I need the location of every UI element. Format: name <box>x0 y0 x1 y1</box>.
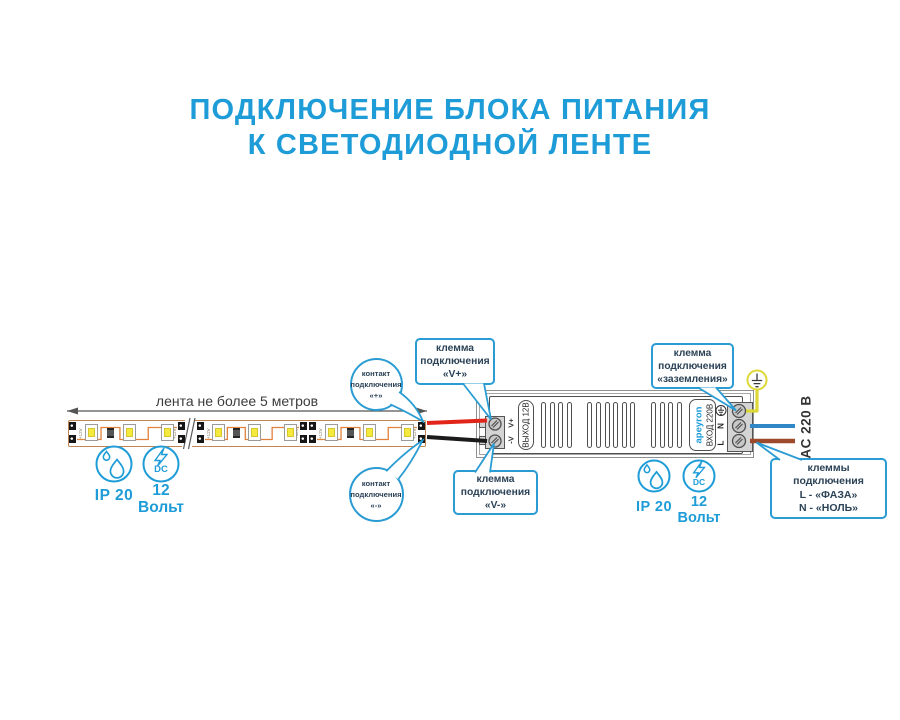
dc-label-right: DC <box>693 477 705 487</box>
callout-line: контакт <box>362 478 390 489</box>
callout-line: «V-» <box>485 499 506 512</box>
terminal-label-neutral: N <box>717 423 726 429</box>
callout-line: «заземления» <box>657 373 727 386</box>
vent-slot <box>630 402 635 448</box>
callout-line: подключения <box>658 360 727 373</box>
vent-slot <box>668 402 673 448</box>
psu-output-label: ВЫХОД 12В <box>522 402 531 447</box>
callout-line: N - «НОЛЬ» <box>799 502 858 515</box>
voltage-value-left: 12 <box>152 482 169 500</box>
vent-slot <box>567 402 572 448</box>
ip20-water-icon-left <box>97 447 132 482</box>
psu-brand-text: apeyron <box>694 407 705 444</box>
callout-line: клеммы <box>807 462 849 475</box>
callout-line: подключения <box>793 475 864 488</box>
callout-line: клемма <box>436 342 474 355</box>
ac-voltage-label: AC 220 В <box>799 395 814 458</box>
voltage-unit-right: Вольт <box>678 510 721 526</box>
callout-line: контакт <box>362 368 390 379</box>
vent-slot <box>550 402 555 448</box>
callout-contact-minus: контакт подключения «-» <box>349 467 404 522</box>
callout-line: «-» <box>371 500 382 511</box>
led-strip-body <box>68 420 426 447</box>
terminal-label-vplus: V+ <box>507 418 516 427</box>
callout-line: клемма <box>476 473 514 486</box>
callout-line: подключения <box>350 489 401 500</box>
ip-rating-right: IP 20 <box>636 499 672 515</box>
voltage-value-right: 12 <box>691 494 707 510</box>
voltage-unit-left: Вольт <box>138 499 184 517</box>
title-line-1: ПОДКЛЮЧЕНИЕ БЛОКА ПИТАНИЯ <box>0 93 900 128</box>
ip-rating-left: IP 20 <box>95 487 133 505</box>
vent-slot <box>677 402 682 448</box>
dc-label-left: DC <box>154 464 168 475</box>
psu-output-wire-nub-minus <box>479 436 486 445</box>
callout-terminal-mains: клеммы подключения L - «ФАЗА» N - «НОЛЬ» <box>770 458 887 519</box>
vent-slot <box>605 402 610 448</box>
diagram-canvas: ПОДКЛЮЧЕНИЕ БЛОКА ПИТАНИЯ К СВЕТОДИОДНОЙ… <box>0 0 900 720</box>
ip20-water-icon-right <box>639 461 670 492</box>
earth-ground-icon <box>748 371 767 390</box>
vent-slot <box>622 402 627 448</box>
callout-line: «V+» <box>443 368 467 381</box>
callout-contact-plus: контакт подключения «+» <box>350 358 403 411</box>
callout-line: «+» <box>370 390 383 401</box>
psu-input-terminal-block <box>727 402 753 452</box>
psu-output-terminal-block <box>485 416 505 449</box>
callout-line: подключения <box>350 379 401 390</box>
psu-input-label: ВХОД 220В <box>706 404 715 446</box>
terminal-label-line: L <box>717 441 726 446</box>
strip-length-label: лента не более 5 метров <box>156 393 318 409</box>
vent-slot <box>587 402 592 448</box>
page-title: ПОДКЛЮЧЕНИЕ БЛОКА ПИТАНИЯ К СВЕТОДИОДНОЙ… <box>0 93 900 163</box>
callout-line: подключения <box>420 355 489 368</box>
vent-slot <box>660 402 665 448</box>
callout-line: L - «ФАЗА» <box>800 489 858 502</box>
callout-line: подключения <box>461 486 530 499</box>
vent-slot <box>596 402 601 448</box>
title-line-2: К СВЕТОДИОДНОЙ ЛЕНТЕ <box>0 128 900 163</box>
callout-line: клемма <box>674 347 712 360</box>
callout-terminal-vminus: клемма подключения «V-» <box>453 470 538 515</box>
callout-terminal-vplus: клемма подключения «V+» <box>415 338 495 385</box>
terminal-label-vminus: -V <box>507 436 516 444</box>
vent-slot <box>558 402 563 448</box>
vent-slot <box>613 402 618 448</box>
vent-slot <box>651 402 656 448</box>
callout-terminal-ground: клемма подключения «заземления» <box>651 343 734 389</box>
vent-slot <box>541 402 546 448</box>
psu-output-wire-nub-plus <box>479 419 486 428</box>
